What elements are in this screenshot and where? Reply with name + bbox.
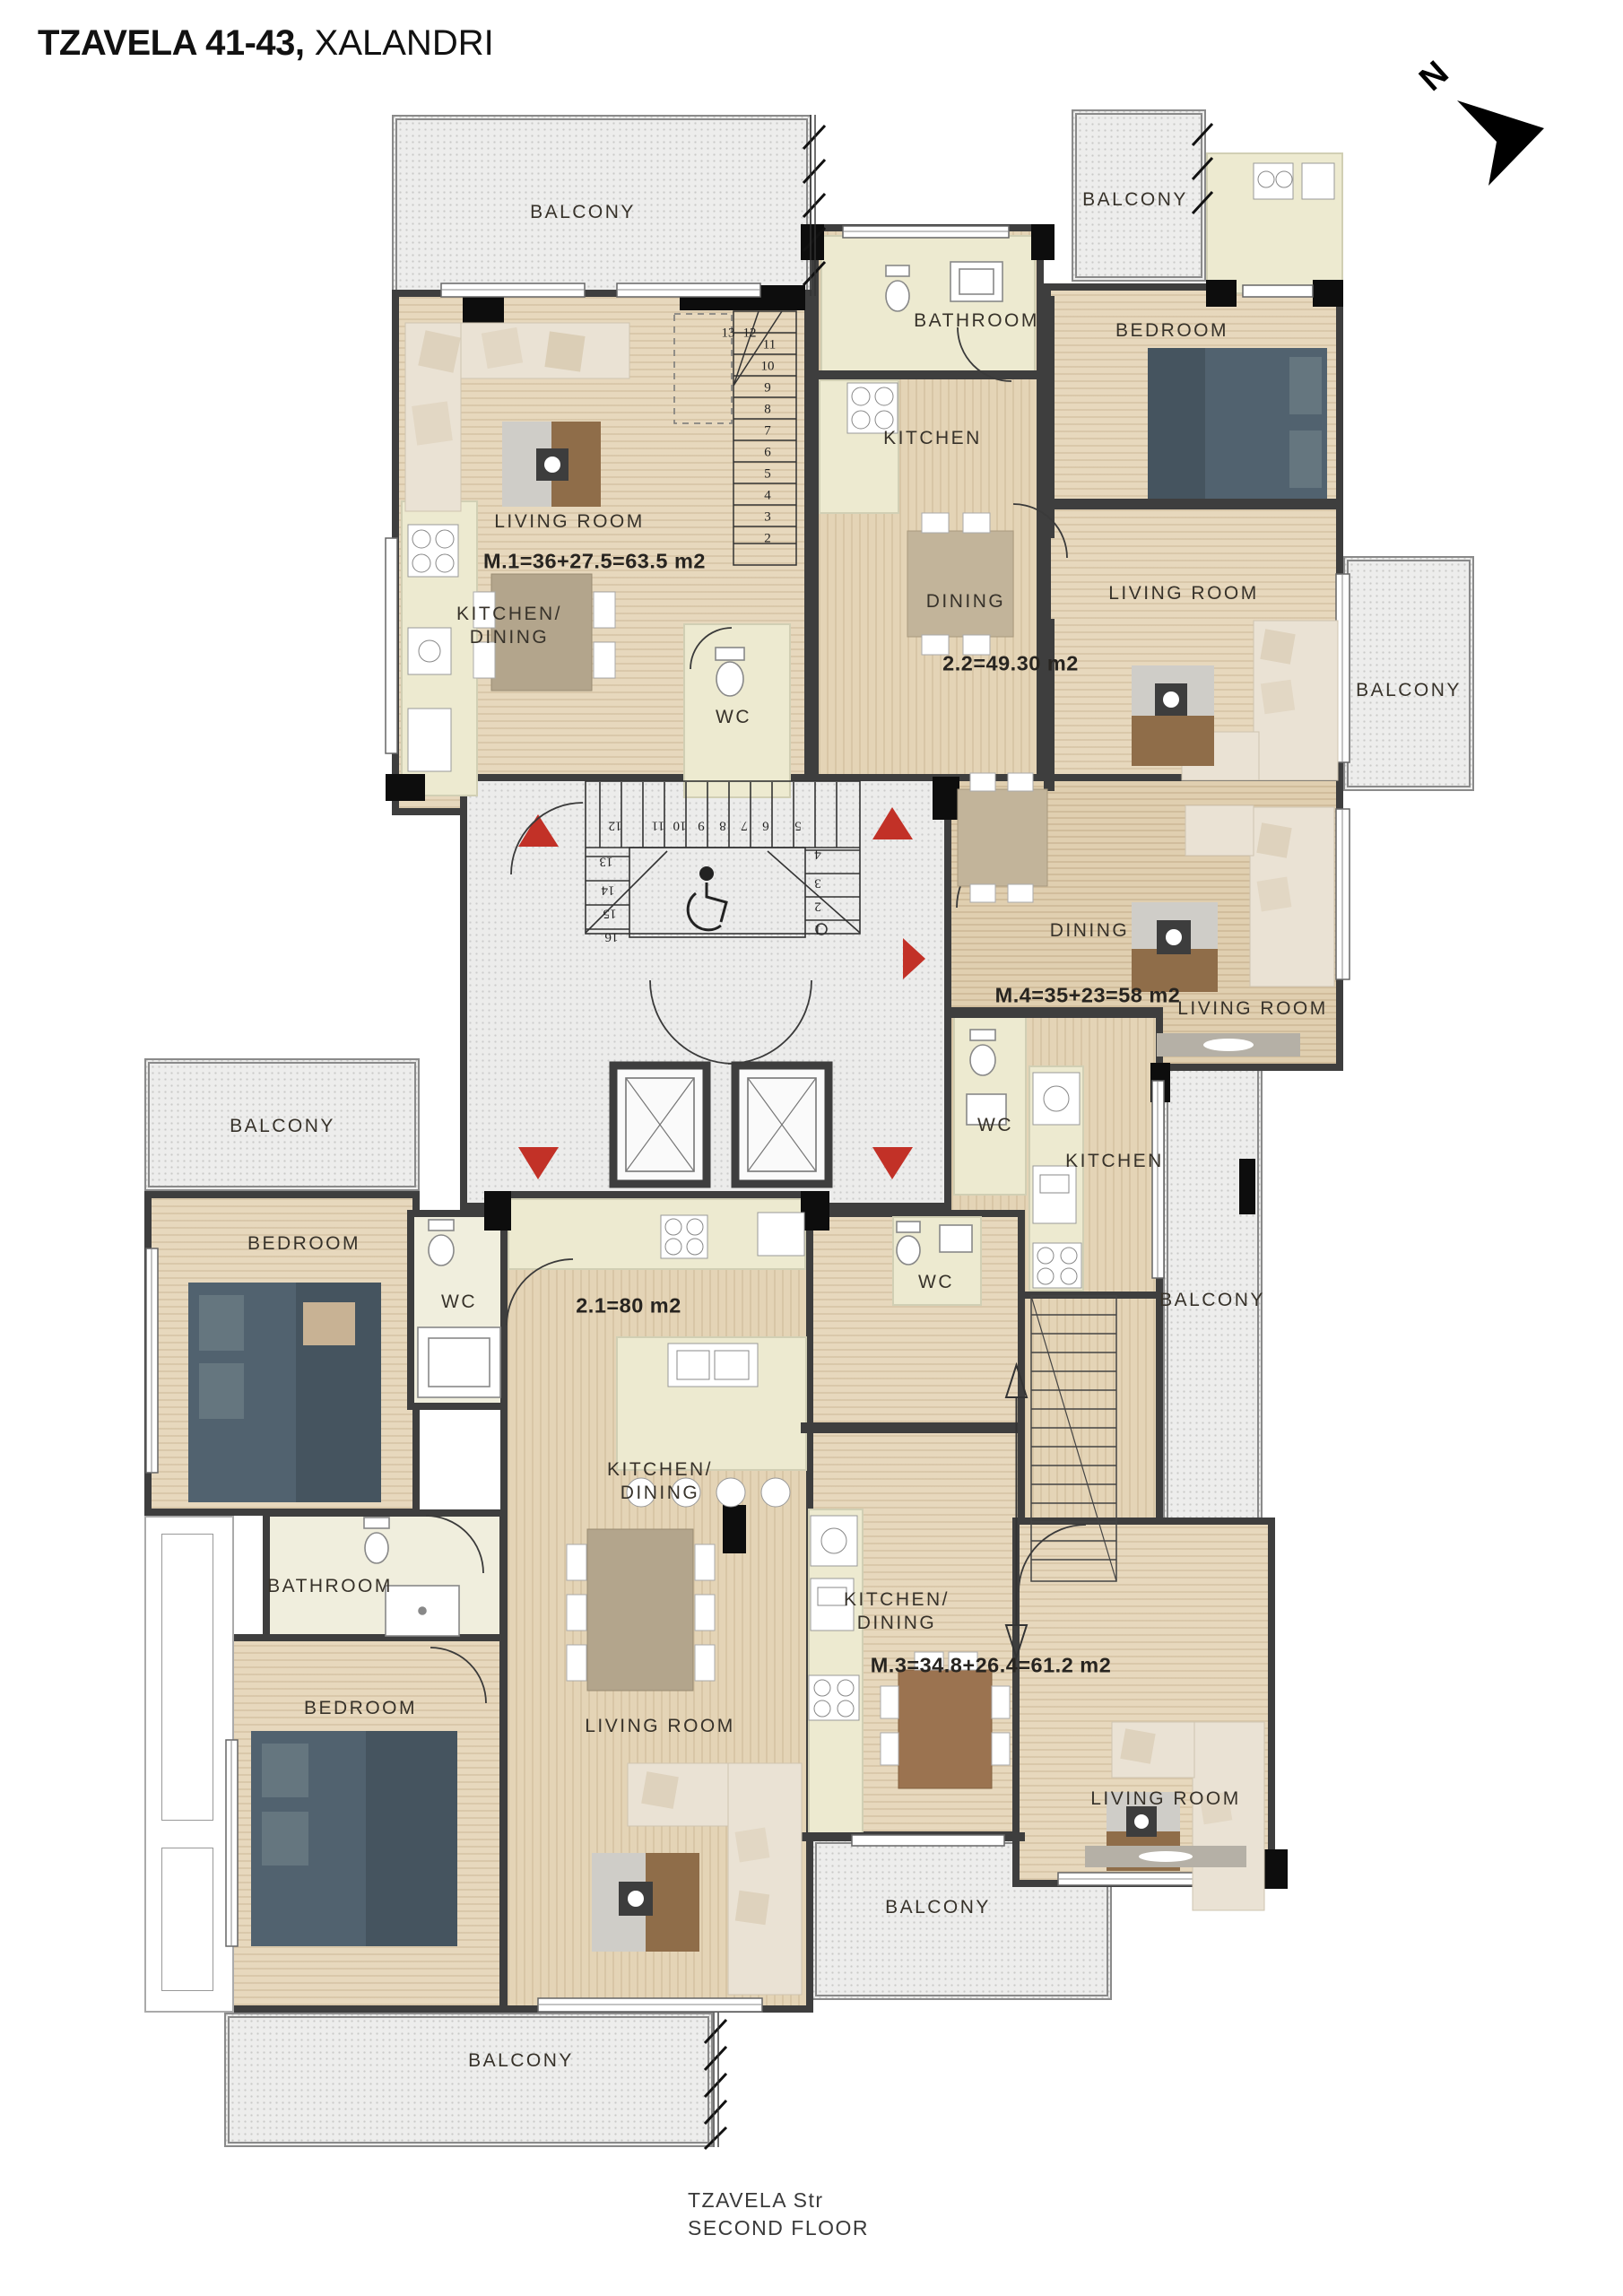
balcony-top-center-label: BALCONY	[1082, 188, 1188, 212]
wc-21-label: WC	[441, 1291, 477, 1314]
stair-step-number: 10	[761, 360, 775, 375]
bathroom-21-label: BATHROOM	[267, 1575, 393, 1598]
drawing-caption: TZAVELA Str SECOND FLOOR	[688, 2187, 869, 2242]
balcony-right-m4-label: BALCONY	[1159, 1289, 1265, 1312]
kitchen-m1-label: KITCHEN/ DINING	[456, 603, 562, 650]
area-21-label: 2.1=80 m2	[576, 1292, 681, 1318]
balcony-top-left-label: BALCONY	[530, 201, 636, 224]
living-22-label: LIVING ROOM	[1108, 582, 1259, 605]
living-m4-label: LIVING ROOM	[1177, 997, 1328, 1021]
stair-step-number: 8	[764, 403, 771, 418]
balcony-left-mid-label: BALCONY	[230, 1115, 335, 1138]
bedroom-22-label: BEDROOM	[1115, 319, 1228, 343]
stair-step-number: 5	[764, 467, 771, 483]
area-m4-label: M.4=35+23=58 m2	[995, 982, 1181, 1008]
living-m3-label: LIVING ROOM	[1090, 1787, 1241, 1811]
page-title: TZAVELA 41-43, XALANDRI	[38, 23, 494, 64]
kitchen-m3-line2: DINING	[857, 1613, 937, 1633]
stair-step-number: 11	[763, 338, 776, 353]
kitchen-m1-line1: KITCHEN/	[456, 604, 562, 624]
wc-m3-label: WC	[918, 1271, 954, 1294]
dining-22-label: DINING	[926, 590, 1006, 613]
balcony-right-22-label: BALCONY	[1356, 679, 1462, 702]
stair-step-number: 6	[764, 446, 771, 461]
caption-floor: SECOND FLOOR	[688, 2214, 869, 2242]
title-street: TZAVELA 41-43,	[38, 23, 305, 63]
kitchen-m3-label: KITCHEN/ DINING	[844, 1588, 950, 1636]
floor-plan-page: 12111098765131415164321 1312111098765432…	[0, 0, 1623, 2296]
stair-step-number: 9	[764, 381, 771, 396]
stair-step-number: 13	[722, 326, 735, 342]
kitchen-21-line2: DINING	[621, 1483, 700, 1503]
wc-m1-label: WC	[716, 706, 751, 729]
kitchen-m1-line2: DINING	[470, 627, 550, 648]
kitchen-21-line1: KITCHEN/	[607, 1459, 713, 1480]
caption-street: TZAVELA Str	[688, 2187, 869, 2214]
m1-stair-numbers: 1312111098765432	[0, 0, 1623, 2296]
stair-step-number: 12	[743, 326, 757, 342]
living-m1-label: LIVING ROOM	[494, 510, 645, 534]
title-area: XALANDRI	[315, 23, 494, 63]
kitchen-m3-line1: KITCHEN/	[844, 1589, 950, 1610]
balcony-bottom-center-label: BALCONY	[885, 1896, 991, 1919]
kitchen-m4-label: KITCHEN	[1065, 1150, 1164, 1173]
area-m3-label: M.3=34.8+26.4=61.2 m2	[871, 1652, 1112, 1678]
bedroom-21b-label: BEDROOM	[304, 1697, 417, 1720]
kitchen-21-label: KITCHEN/ DINING	[607, 1458, 713, 1506]
dining-m4-label: DINING	[1050, 919, 1130, 943]
kitchen-22-label: KITCHEN	[883, 427, 982, 450]
bathroom-22-label: BATHROOM	[914, 309, 1039, 333]
stair-step-number: 3	[764, 510, 771, 526]
living-21-label: LIVING ROOM	[585, 1715, 735, 1738]
area-m1-label: M.1=36+27.5=63.5 m2	[483, 548, 706, 574]
wc-m4-label: WC	[977, 1114, 1013, 1137]
bedroom-21a-label: BEDROOM	[247, 1232, 360, 1256]
stair-step-number: 7	[764, 424, 771, 439]
stair-step-number: 4	[764, 489, 771, 504]
stair-step-number: 2	[764, 532, 771, 547]
balcony-bottom-left-label: BALCONY	[468, 2049, 574, 2073]
area-22-label: 2.2=49.30 m2	[942, 650, 1079, 676]
